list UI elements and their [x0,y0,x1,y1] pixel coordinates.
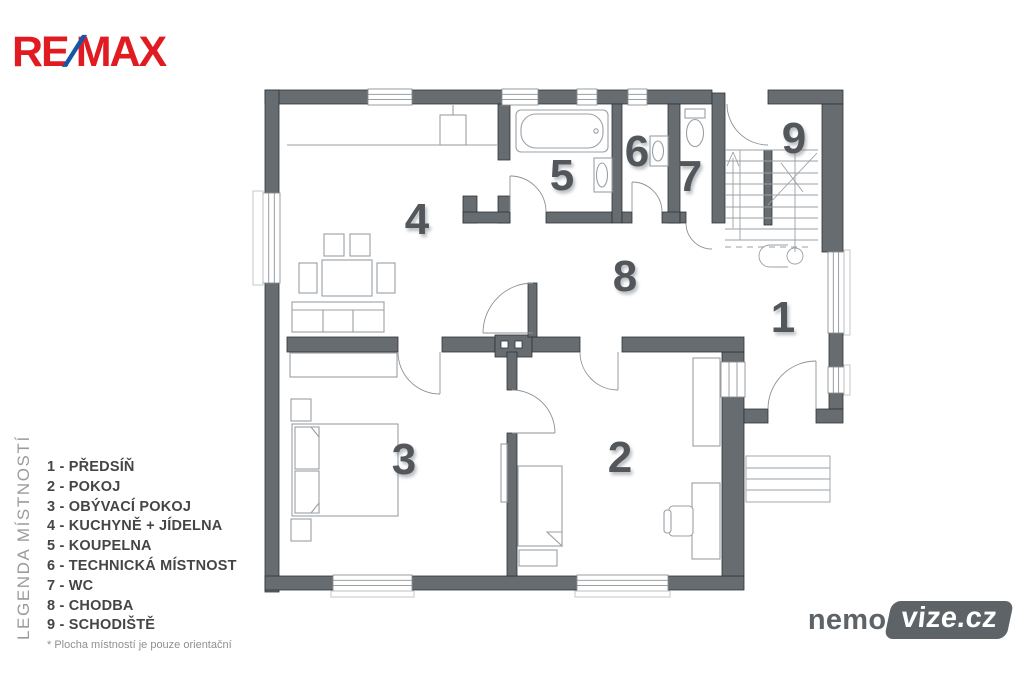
room-number-8: 8 [613,252,637,302]
nemovize-logo: nemo vize.cz [808,601,1010,639]
legend-vertical-title: LEGENDA MÍSTNOSTÍ [14,462,34,640]
legend-item-5: 5 - KOUPELNA [47,537,237,557]
bathtub [516,110,608,152]
legend-item-4: 4 - KUCHYNĚ + JÍDELNA [47,517,237,537]
room-number-2: 2 [608,433,632,483]
desk [692,483,720,559]
exterior-steps [746,456,830,502]
nemovize-logo-badge: vize.cz [884,601,1014,639]
toilet [685,109,705,147]
legend-item-7: 7 - WC [47,577,237,597]
legend-footnote: * Plocha místností je pouze orientační [47,639,232,651]
nemovize-logo-prefix: nemo [808,604,887,637]
dining-table [299,234,395,296]
room-number-6: 6 [625,127,649,177]
legend-item-3: 3 - OBÝVACÍ POKOJ [47,498,237,518]
room-number-5: 5 [550,151,574,201]
room-number-3: 3 [392,435,416,485]
room-number-4: 4 [405,195,429,245]
single-bed [518,466,562,566]
legend-item-8: 8 - CHODBA [47,597,237,617]
mirror [501,444,507,502]
room-number-1: 1 [771,293,795,343]
double-bed [292,424,398,516]
nemovize-logo-badge-text: vize.cz [900,602,999,635]
legend-list: 1 - PŘEDSÍŇ2 - POKOJ3 - OBÝVACÍ POKOJ4 -… [47,458,237,636]
legend-item-2: 2 - POKOJ [47,478,237,498]
legend-item-9: 9 - SCHODIŠTĚ [47,616,237,636]
kitchen-counter [287,105,497,145]
sofa [292,302,384,332]
doors [398,104,816,433]
wardrobe-room2 [693,358,720,446]
room-number-9: 9 [782,114,806,164]
wardrobe-room3 [290,353,397,377]
page: RE/MAX [0,0,1024,682]
legend-item-6: 6 - TECHNICKÁ MÍSTNOST [47,557,237,577]
utility-sink [650,136,668,166]
desk-chair [664,506,693,536]
bathroom-sink [594,158,612,192]
room-number-7: 7 [678,152,702,202]
legend-item-1: 1 - PŘEDSÍŇ [47,458,237,478]
